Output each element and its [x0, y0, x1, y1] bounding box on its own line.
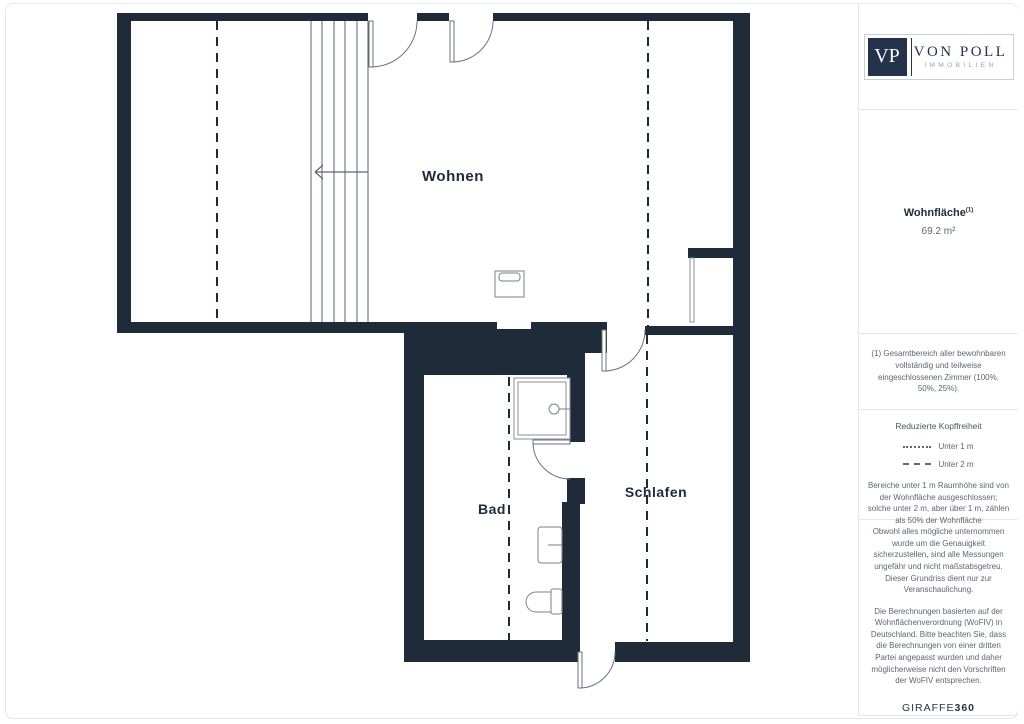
toilet — [526, 589, 562, 614]
stove — [495, 271, 524, 297]
footnote-section: (1) Gesamtbereich aller bewohnbaren voll… — [859, 334, 1018, 410]
legend-title: Reduzierte Kopffreiheit — [895, 421, 981, 431]
logo-section: VP VON POLL IMMOBILIEN — [859, 4, 1018, 110]
door-bad — [533, 440, 570, 479]
sink — [538, 527, 562, 563]
legend-item-under-2m: Unter 2 m — [903, 459, 973, 471]
door-top-right — [450, 21, 493, 62]
brand-subtitle: IMMOBILIEN — [924, 62, 996, 69]
headroom-legend-section: Reduzierte Kopffreiheit Unter 1 m Unter … — [859, 410, 1018, 520]
niche-window — [690, 258, 694, 322]
dotted-line-icon — [903, 446, 931, 448]
door-top-left — [369, 21, 417, 67]
footnote-text: (1) Gesamtbereich aller bewohnbaren voll… — [869, 348, 1008, 394]
legend-item-label: Unter 1 m — [938, 441, 973, 453]
footnote-marker: (1) — [966, 207, 973, 213]
disclaimer-calculation: Die Berechnungen basierten auf der Wohnf… — [868, 606, 1009, 687]
giraffe360-logo: GIRAFFE360 — [902, 702, 975, 714]
von-poll-logo: VP VON POLL IMMOBILIEN — [864, 34, 1014, 80]
door-schlafen — [602, 330, 645, 371]
living-area-section: Wohnfläche(1) 69.2 m² — [859, 110, 1018, 334]
disclaimer-accuracy: Obwohl alles mögliche unternommen wurde … — [868, 526, 1009, 596]
vp-monogram-icon: VP — [868, 38, 907, 76]
room-label-bad: Bad — [478, 501, 506, 517]
brand-name: VON POLL — [914, 44, 1008, 61]
walls — [117, 13, 750, 662]
giraffe360-suffix: 360 — [954, 702, 975, 714]
disclaimer-section: Obwohl alles mögliche unternommen wurde … — [859, 520, 1018, 716]
legend-item-under-1m: Unter 1 m — [903, 441, 973, 453]
room-label-schlafen: Schlafen — [625, 484, 687, 500]
giraffe360-brand: GIRAFFE — [902, 702, 955, 714]
info-sidebar: VP VON POLL IMMOBILIEN Wohnfläche(1) 69.… — [858, 4, 1018, 716]
dashed-line-icon — [903, 463, 931, 465]
room-label-wohnen: Wohnen — [422, 168, 484, 185]
stairs-direction-arrow-icon — [315, 165, 368, 179]
legend-item-label: Unter 2 m — [938, 459, 973, 471]
living-area-label: Wohnfläche(1) — [904, 207, 973, 219]
living-area-value: 69.2 m² — [922, 226, 956, 237]
door-entrance — [578, 652, 615, 688]
